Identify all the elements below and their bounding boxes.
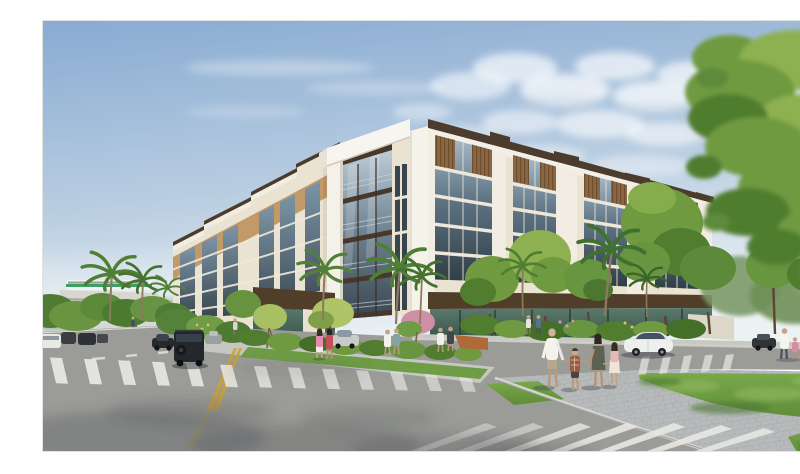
rendering-canvas xyxy=(40,16,800,458)
tower-side-wall xyxy=(392,137,410,316)
corner-pier xyxy=(410,126,428,316)
corner-tower xyxy=(319,119,428,323)
architectural-rendering: Architectural rendering of a six-story c… xyxy=(40,16,800,458)
